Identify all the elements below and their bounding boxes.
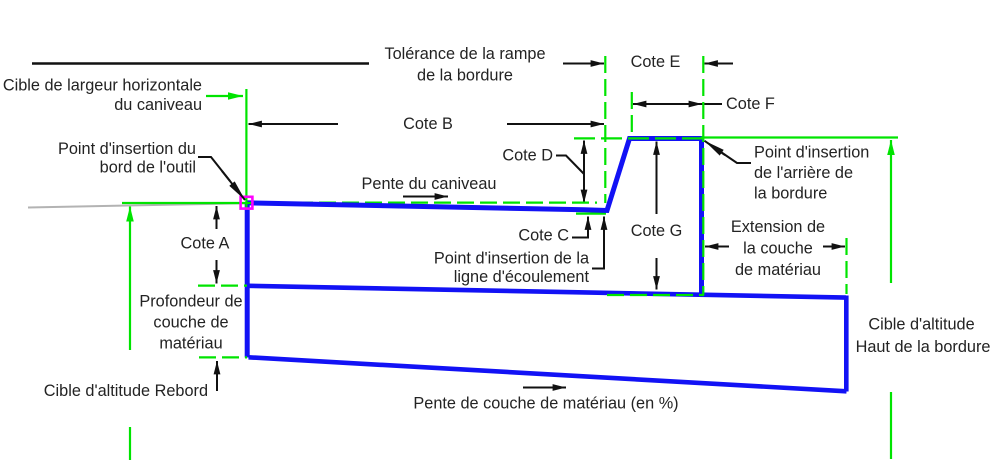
svg-text:Pente de couche de matériau (e: Pente de couche de matériau (en %) <box>413 395 678 413</box>
svg-text:de l'arrière de: de l'arrière de <box>754 164 853 182</box>
svg-text:Cible d'altitude: Cible d'altitude <box>868 316 974 334</box>
svg-text:la couche: la couche <box>743 240 813 258</box>
svg-text:Cote F: Cote F <box>726 95 775 113</box>
svg-text:Point d'insertion du: Point d'insertion du <box>58 140 196 158</box>
svg-text:Cote C: Cote C <box>518 227 569 245</box>
svg-text:bord de l'outil: bord de l'outil <box>100 159 196 177</box>
svg-text:Extension de: Extension de <box>731 218 825 236</box>
svg-text:Cote B: Cote B <box>403 115 453 133</box>
svg-text:Point d'insertion: Point d'insertion <box>754 144 869 162</box>
svg-text:Cote D: Cote D <box>502 147 553 165</box>
svg-text:Cote G: Cote G <box>631 222 683 240</box>
svg-text:matériau: matériau <box>159 335 222 353</box>
svg-text:Tolérance de la rampe: Tolérance de la rampe <box>384 45 545 63</box>
svg-text:Haut de la bordure: Haut de la bordure <box>856 338 991 356</box>
svg-text:Profondeur de: Profondeur de <box>139 293 242 311</box>
svg-text:de matériau: de matériau <box>735 261 821 279</box>
svg-text:du caniveau: du caniveau <box>114 96 202 114</box>
svg-text:Pente du caniveau: Pente du caniveau <box>362 175 497 193</box>
svg-text:Cible d'altitude Rebord: Cible d'altitude Rebord <box>44 382 208 400</box>
svg-text:de la bordure: de la bordure <box>417 67 513 85</box>
svg-text:Point d'insertion de la: Point d'insertion de la <box>434 250 590 268</box>
svg-text:couche de: couche de <box>153 314 228 332</box>
svg-text:la bordure: la bordure <box>754 185 827 203</box>
svg-text:Cote E: Cote E <box>631 53 681 71</box>
svg-text:Cote A: Cote A <box>181 235 230 253</box>
svg-text:ligne d'écoulement: ligne d'écoulement <box>454 268 590 286</box>
svg-text:Cible de largeur horizontale: Cible de largeur horizontale <box>3 77 202 95</box>
